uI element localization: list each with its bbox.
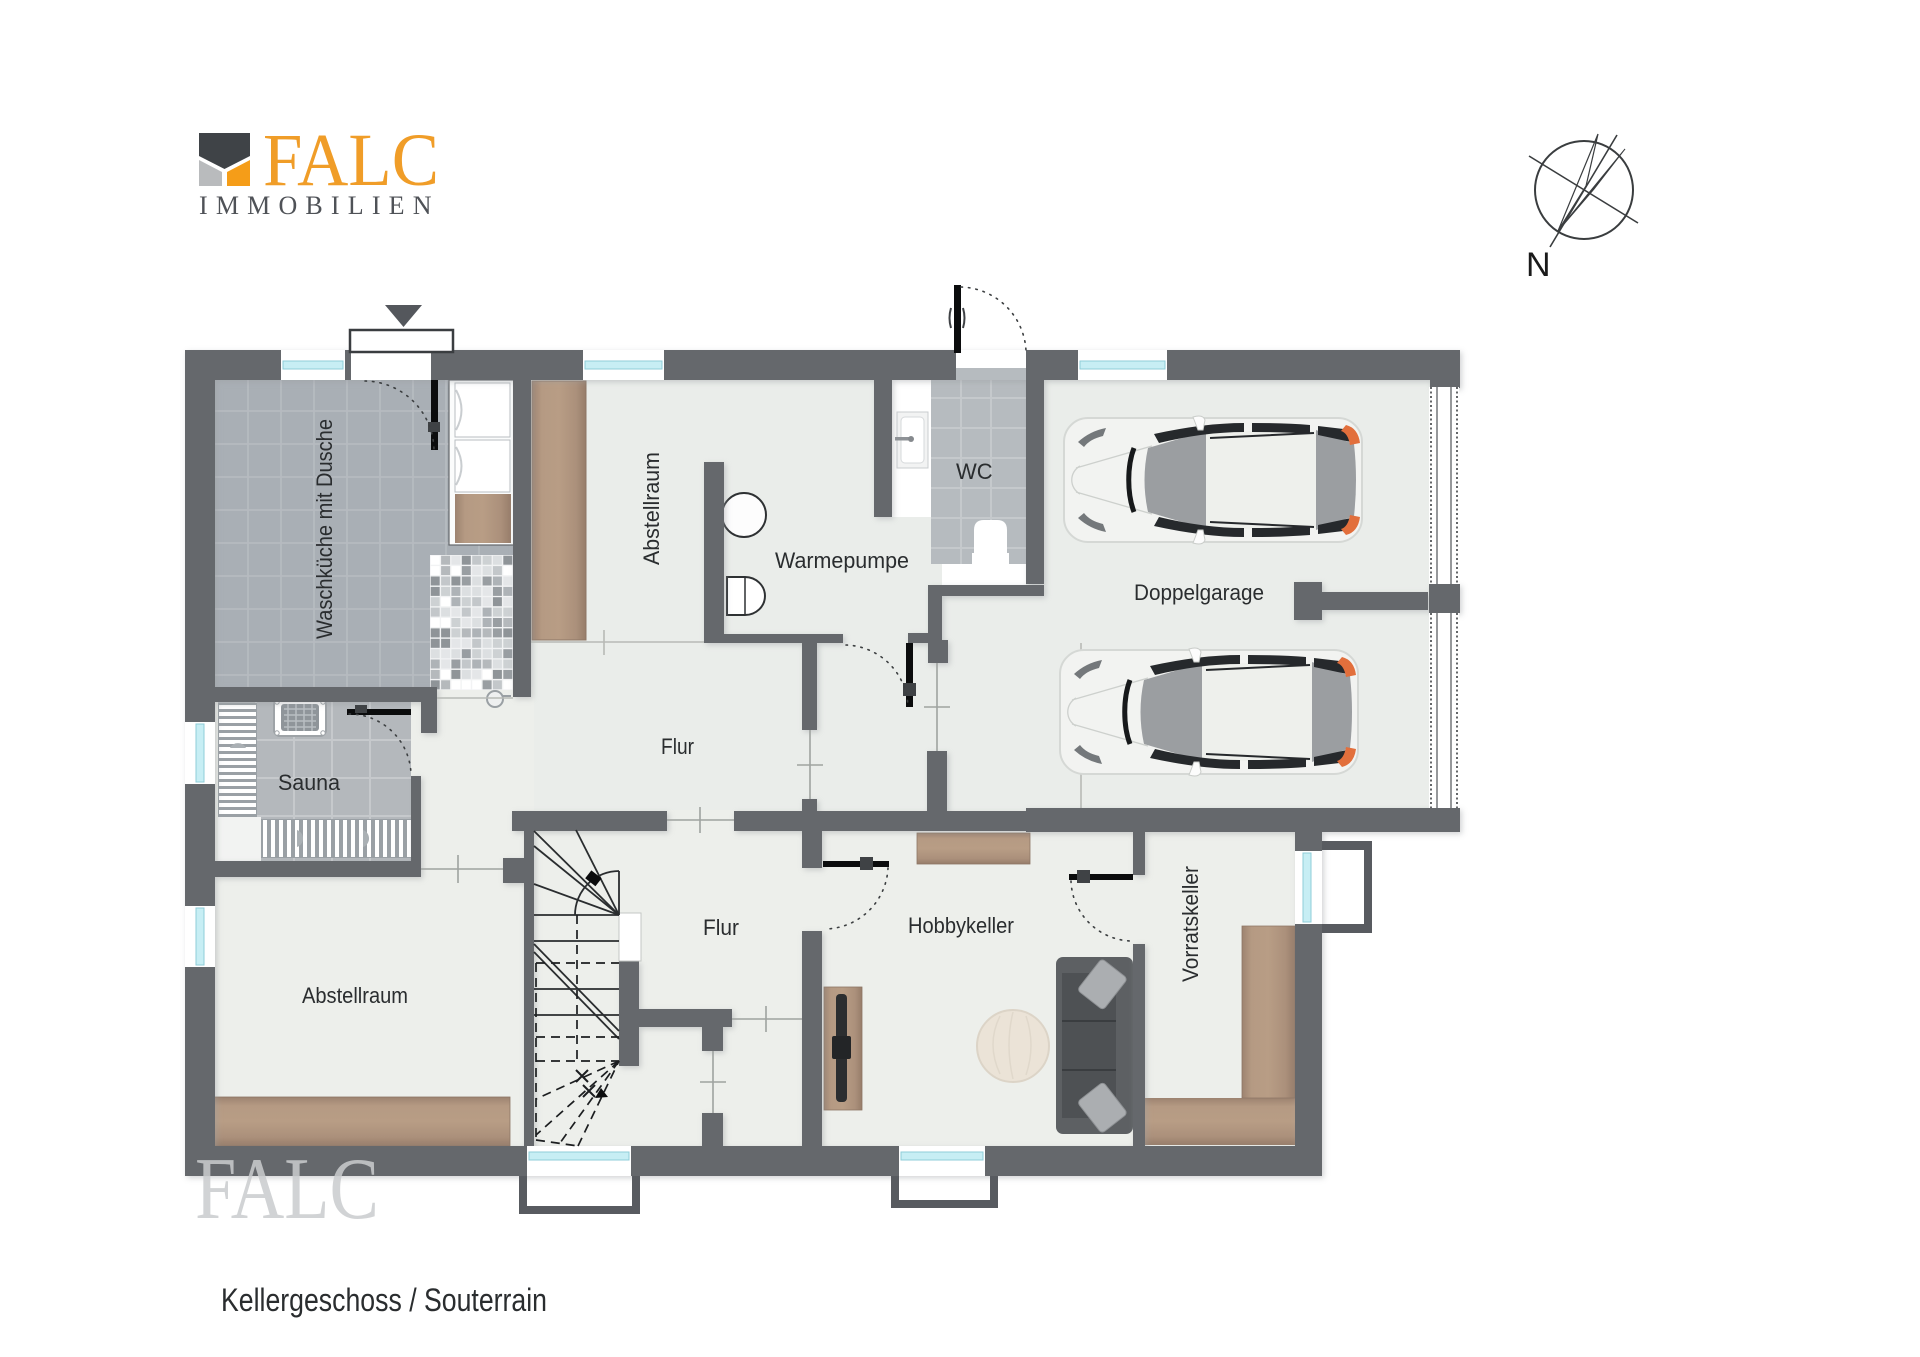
svg-text:IMMOBILIEN: IMMOBILIEN bbox=[199, 191, 439, 220]
svg-text:Sauna: Sauna bbox=[278, 770, 341, 795]
svg-text:Doppelgarage: Doppelgarage bbox=[1134, 580, 1264, 605]
svg-text:Kellergeschoss / Souterrain: Kellergeschoss / Souterrain bbox=[221, 1282, 547, 1318]
svg-text:Flur: Flur bbox=[661, 734, 694, 759]
svg-text:Vorratskeller: Vorratskeller bbox=[1178, 866, 1203, 982]
svg-text:Hobbykeller: Hobbykeller bbox=[908, 913, 1014, 938]
svg-text:Abstellraum: Abstellraum bbox=[639, 452, 664, 565]
svg-text:FALC: FALC bbox=[195, 1141, 379, 1238]
svg-text:Warmepumpe: Warmepumpe bbox=[775, 548, 909, 573]
svg-text:N: N bbox=[1526, 246, 1551, 284]
svg-text:Flur: Flur bbox=[703, 915, 739, 940]
svg-text:Waschküche mit Dusche: Waschküche mit Dusche bbox=[312, 419, 337, 639]
svg-text:WC: WC bbox=[956, 459, 993, 484]
svg-text:Abstellraum: Abstellraum bbox=[302, 983, 408, 1008]
svg-text:FALC: FALC bbox=[263, 119, 439, 202]
